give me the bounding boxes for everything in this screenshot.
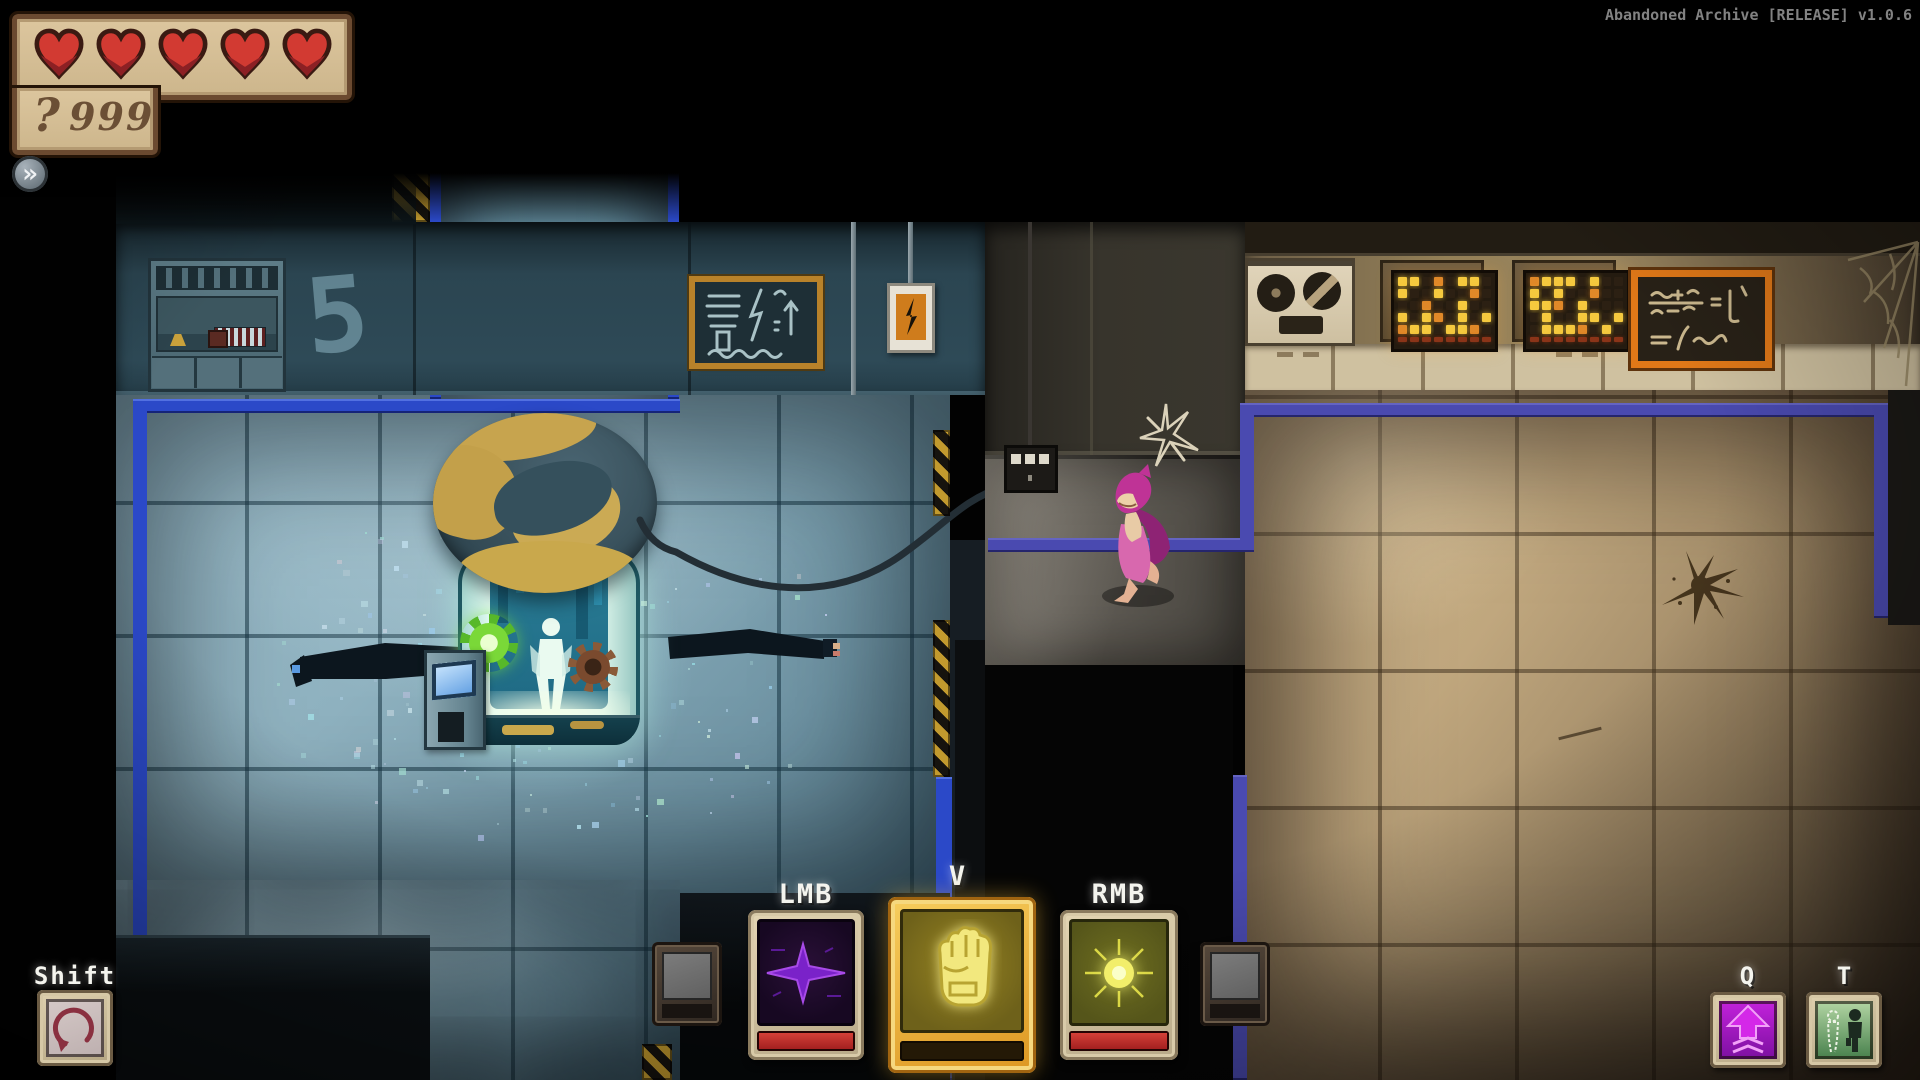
label-rmb: RMB (1092, 879, 1147, 910)
ability-slot-empty-left[interactable] (652, 942, 722, 1026)
chalk-formulas (1638, 277, 1765, 361)
archive-room-floor (1245, 390, 1920, 1080)
corridor-wall-seam (1090, 222, 1093, 455)
frost-dot (373, 739, 378, 744)
energy-burst-icon (1075, 929, 1163, 1017)
frost-dot (497, 823, 499, 825)
frost-dot (618, 760, 625, 767)
game-viewport: 5 (0, 0, 1920, 1080)
empty-slot-screen (1210, 952, 1260, 1000)
frost-dot (710, 812, 713, 815)
frost-dot (308, 714, 314, 720)
corridor-wall (985, 222, 1245, 455)
frost-dot (387, 710, 394, 717)
cobweb (1840, 240, 1920, 390)
ability-slot-rmb[interactable] (1060, 910, 1178, 1060)
label-shift: Shift (34, 962, 116, 990)
roll-dash-icon (49, 1002, 101, 1054)
archive-wall-top-band (1245, 222, 1920, 256)
frost-dot (657, 799, 664, 806)
empty-slot-bar (1210, 1004, 1260, 1018)
frost-dot (548, 747, 552, 751)
frost-dot (478, 835, 484, 841)
frost-dot (413, 789, 418, 794)
frost-dot (354, 753, 360, 759)
frost-dot (767, 781, 770, 784)
matrix-machine-b (1512, 260, 1616, 342)
ability-slot-q[interactable] (1710, 992, 1786, 1068)
label-t: T (1837, 962, 1853, 990)
frost-dot (735, 753, 741, 759)
heart-icon (31, 26, 87, 82)
frost-dot (301, 753, 306, 758)
device-window (1039, 454, 1049, 464)
frost-dot (356, 747, 361, 752)
frost-dot (460, 753, 464, 757)
tape-reel-icon (1303, 272, 1341, 310)
frost-dot (530, 794, 532, 796)
hanging-device (1004, 445, 1058, 493)
frost-dot (538, 749, 541, 752)
frost-dot (375, 801, 379, 805)
pipe-archive-top (1240, 403, 1882, 417)
cabinet-handle (1582, 352, 1598, 357)
heart-icon (155, 26, 211, 82)
hazard-door-top (933, 430, 950, 516)
frost-dot (408, 708, 412, 712)
ability-slot-v-selected[interactable] (888, 897, 1036, 1073)
pipe-archive-right-edge (1874, 403, 1888, 618)
frost-dot (710, 778, 713, 781)
reel-computer (1245, 258, 1355, 346)
frost-dot (384, 763, 386, 765)
frost-dot (592, 822, 599, 829)
swap-character-icon (1818, 1004, 1870, 1056)
pipe-archive-left (1240, 403, 1254, 552)
matrix-display-b (1523, 270, 1630, 352)
hearts-row (31, 26, 335, 82)
chevrons-right-icon: » (22, 159, 38, 189)
right-edge-dark-strip (1888, 390, 1920, 625)
frost-dot (726, 709, 729, 712)
frost-dot (525, 808, 530, 813)
frost-dot (628, 758, 633, 763)
ability-slot-empty-right[interactable] (1200, 942, 1270, 1026)
frost-dot (394, 738, 396, 740)
frost-dot (752, 717, 758, 723)
frost-dot (523, 761, 526, 764)
matrix-display-a (1391, 270, 1498, 352)
frost-dot (543, 808, 547, 812)
tape-reel-icon (1257, 274, 1295, 312)
heart-icon (217, 26, 273, 82)
ability-slot-lmb[interactable] (748, 910, 864, 1060)
frost-dot (708, 729, 712, 733)
dirt-splat (1650, 545, 1750, 631)
frost-dot (636, 796, 640, 800)
empty-slot-bar (662, 1004, 712, 1018)
device-window (1011, 454, 1021, 464)
frost-dot (426, 787, 428, 789)
frost-dot (745, 765, 749, 769)
question-key-icon: ? (33, 88, 60, 142)
frost-dot (399, 768, 406, 775)
upgrade-arrow-icon (1723, 1004, 1773, 1056)
cabinet-handle (1277, 352, 1293, 357)
frost-dot (788, 764, 792, 768)
hazard-bottom-left (642, 1044, 672, 1080)
purple-dart-icon (763, 938, 849, 1008)
label-v: V (949, 861, 967, 892)
label-q: Q (1740, 962, 1756, 990)
reel-mouth (1279, 316, 1323, 334)
v-charge-bar (900, 1041, 1024, 1061)
frost-dot (707, 735, 710, 738)
frost-dot (577, 825, 581, 829)
frost-dot (513, 759, 516, 762)
heart-icon (279, 26, 335, 82)
rmb-cooldown-bar (1069, 1031, 1169, 1051)
frost-dot (371, 765, 375, 769)
pipe-archive-lower-stub (1233, 775, 1247, 1080)
hazard-door-bottom (933, 620, 950, 777)
label-lmb: LMB (779, 879, 834, 910)
frost-dot (417, 780, 423, 786)
frost-dot (585, 783, 587, 785)
frost-dot (731, 795, 734, 798)
frost-dot (476, 776, 480, 780)
empty-slot-screen (662, 952, 712, 1000)
game-title: Abandoned Archive [RELEASE] v1.0.6 (1605, 6, 1912, 24)
tank-base-gold-streak (570, 721, 604, 729)
heart-icon (93, 26, 149, 82)
matrix-machine-a (1380, 260, 1484, 342)
fist-icon (922, 919, 1002, 1023)
device-rod (1028, 222, 1032, 447)
frost-dot (464, 770, 466, 772)
console-slot (438, 712, 464, 742)
tank-base-gold-streak (502, 725, 554, 735)
expand-hud-button[interactable]: » (12, 156, 48, 192)
frost-dot (635, 808, 639, 812)
frost-dot (659, 735, 661, 737)
currency-value: 999 (69, 94, 154, 139)
cabinet-handle (1303, 352, 1319, 357)
device-dot (1028, 475, 1032, 481)
currency-panel: ? 999 (12, 88, 158, 155)
frost-dot (443, 789, 449, 795)
ability-slot-t[interactable] (1806, 992, 1882, 1068)
device-window (1025, 454, 1035, 464)
player-character (1088, 462, 1198, 617)
formula-board (1638, 277, 1765, 361)
cabinet-handle (1556, 352, 1572, 357)
frost-dot (646, 815, 648, 817)
top-darkness-fade (680, 0, 1920, 222)
frost-dot (611, 803, 615, 807)
lmb-cooldown-bar (757, 1031, 855, 1051)
ability-slot-shift[interactable] (37, 990, 113, 1066)
frost-dot (698, 721, 700, 723)
